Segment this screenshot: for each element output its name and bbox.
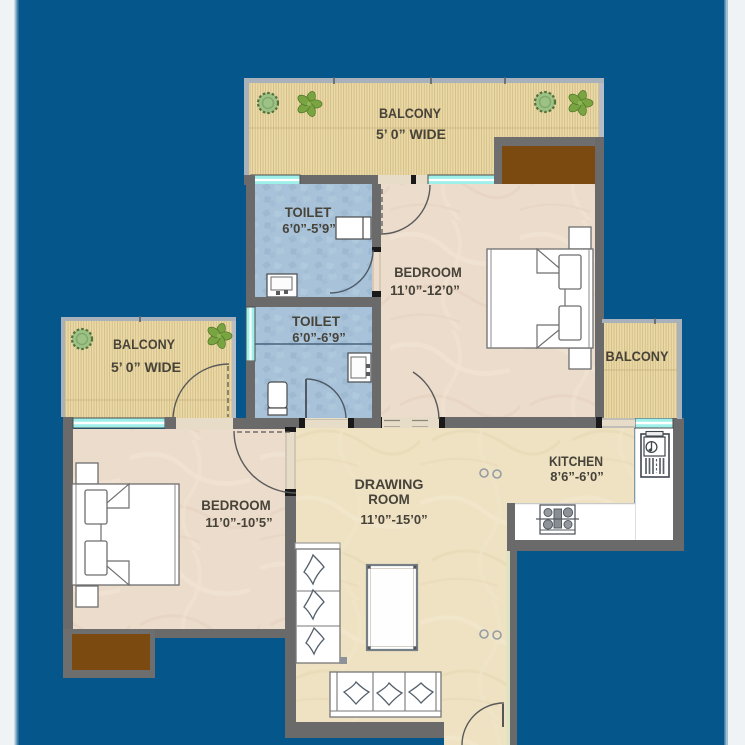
svg-text:BEDROOM: BEDROOM (201, 497, 271, 513)
svg-text:KITCHEN: KITCHEN (549, 453, 603, 469)
svg-text:DRAWING: DRAWING (355, 476, 424, 492)
svg-text:11’0”-12’0”: 11’0”-12’0” (390, 283, 460, 298)
svg-text:8’6”-6’0”: 8’6”-6’0” (550, 469, 603, 484)
svg-text:6’0”-5’9”: 6’0”-5’9” (282, 221, 335, 236)
svg-text:TOILET: TOILET (292, 313, 340, 329)
svg-text:BALCONY: BALCONY (606, 348, 670, 364)
svg-text:11’0”-15’0”: 11’0”-15’0” (360, 512, 427, 527)
svg-text:ROOM: ROOM (368, 491, 410, 507)
svg-text:6’0”-6’9”: 6’0”-6’9” (292, 330, 345, 345)
svg-text:TOILET: TOILET (285, 204, 332, 220)
svg-text:BEDROOM: BEDROOM (394, 264, 462, 280)
svg-text:5’ 0” WIDE: 5’ 0” WIDE (111, 359, 181, 375)
svg-text:BALCONY: BALCONY (379, 105, 442, 121)
svg-text:BALCONY: BALCONY (113, 336, 176, 352)
svg-text:11’0”-10’5”: 11’0”-10’5” (205, 515, 272, 530)
svg-text:5’ 0” WIDE: 5’ 0” WIDE (376, 126, 446, 142)
